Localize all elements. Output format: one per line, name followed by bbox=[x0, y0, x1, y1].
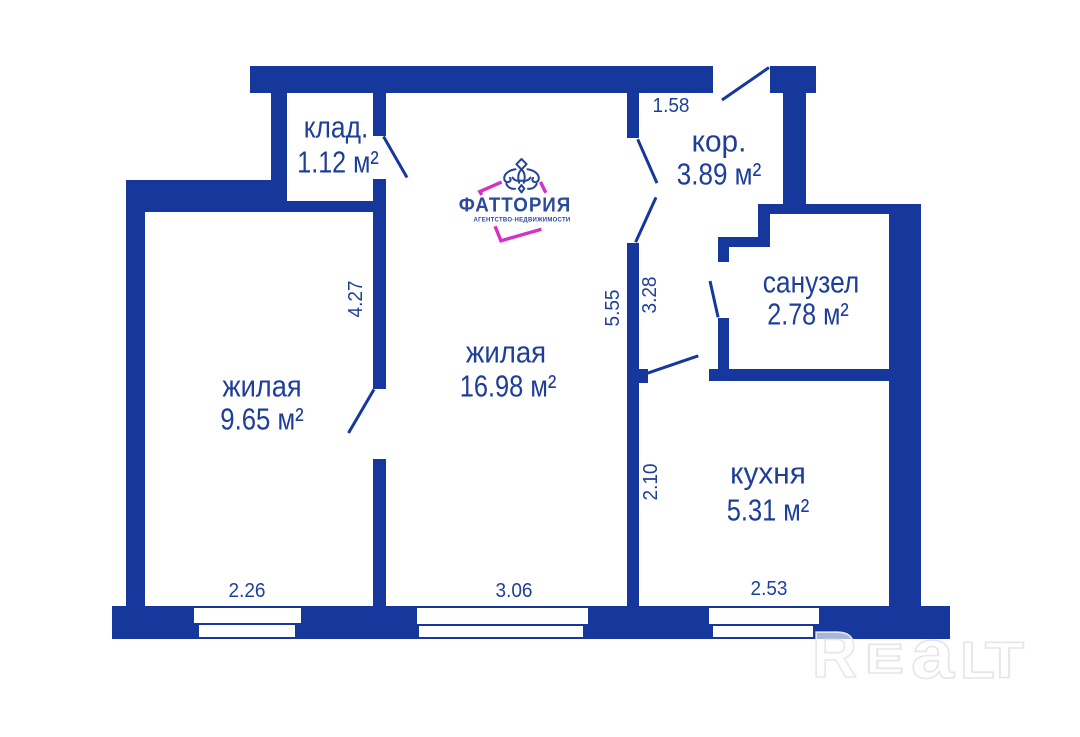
svg-text:a: a bbox=[911, 615, 955, 693]
svg-text:R: R bbox=[812, 619, 857, 691]
svg-text:E: E bbox=[865, 635, 904, 682]
svg-text:T: T bbox=[985, 632, 1024, 689]
